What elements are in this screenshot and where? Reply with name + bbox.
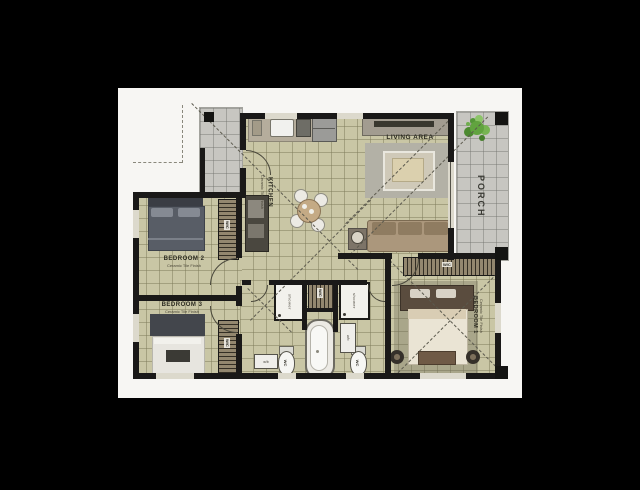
open-area-dashed-line-vertical: [182, 105, 183, 163]
sliding-door-porch: [448, 162, 454, 228]
bedroom3-wardrobe-label: W/C: [224, 338, 230, 348]
shower-drain: [278, 314, 281, 317]
porch-label: PORCH: [475, 172, 485, 220]
bedroom3-sublabel: Ceramic Tile Finish: [154, 310, 210, 314]
bedroom2-sublabel: Ceramic Tile Finish: [156, 264, 212, 268]
bedroom2-wardrobe-label: W/C: [224, 220, 230, 230]
wall-kitchen-left-upper: [240, 113, 246, 150]
window-bedroom2: [133, 210, 139, 238]
toilet-label: WC: [355, 360, 360, 367]
bedroom2-headboard: [148, 198, 203, 206]
wall-bath-top-a: [242, 280, 251, 285]
bedroom3-headboard: [150, 314, 205, 336]
bedroom1-bench: [418, 351, 456, 365]
wall-bedroom1-right-upper: [495, 253, 501, 303]
window-bedroom1-right: [495, 303, 501, 333]
window-bedroom3: [133, 314, 139, 342]
wall-corridor-mid: [236, 286, 242, 306]
wall-bedroom23-divider: [133, 295, 242, 301]
bathtub-basin: [310, 325, 328, 371]
sliding-door-track: [450, 162, 451, 228]
window-bath-right: [346, 373, 364, 379]
porch-column-bottom: [495, 247, 508, 260]
shower-label: shower: [288, 294, 293, 310]
living-area-label: LIVING AREA: [368, 134, 452, 141]
bedroom1-label: BEDROOM 1: [472, 284, 478, 346]
porch-column-top: [495, 112, 508, 125]
window-bedroom3-bottom: [156, 373, 194, 379]
bedroom3-label: BEDROOM 3: [154, 302, 210, 309]
kitchen-label: KITCHEN: [266, 156, 273, 228]
wall-bedroom2-right: [236, 198, 242, 258]
kitchen-cooktop: [248, 224, 264, 238]
bedroom1-pillow: [436, 289, 456, 298]
kitchen-sublabel: Ceramic Tile Finish: [260, 162, 264, 222]
refrigerator: [312, 117, 337, 142]
kitchen-stove: [296, 119, 311, 137]
bath-divider-wall-right: [333, 280, 338, 332]
bedroom2-blanket-fold: [148, 238, 203, 240]
bedroom3-bench: [166, 350, 190, 362]
bedroom2-label: BEDROOM 2: [156, 256, 212, 263]
window-living-top: [337, 113, 363, 119]
closet-bottom-wall: [307, 308, 338, 312]
refrigerator-divider: [312, 128, 335, 129]
entry-column: [204, 112, 214, 122]
house-corner-column: [495, 366, 508, 379]
dining-plate: [309, 209, 314, 214]
washbasin-left: w/b: [254, 354, 278, 369]
dining-plate: [302, 204, 307, 209]
sofa-cushion: [424, 222, 448, 235]
toilet-label: WC: [283, 360, 288, 367]
bedroom3-sheet: [154, 338, 201, 344]
washbasin-right: w/b: [340, 323, 356, 353]
bedroom1-bedside-lamp: [466, 350, 480, 364]
shower-drain: [343, 313, 346, 316]
window-kitchen: [265, 113, 297, 119]
bathtub-drain: [316, 350, 319, 353]
bedroom1-bedside-lamp: [390, 350, 404, 364]
wall-bedroom1-top-b: [418, 253, 501, 259]
toilet-left: WC: [278, 346, 293, 375]
kitchen-drainer: [252, 120, 262, 136]
wall-bedroom2-top: [133, 192, 242, 198]
hall-closet-label: W/C: [317, 288, 323, 298]
wall-bedroom1-top-a: [338, 253, 392, 259]
kitchen-sink: [270, 119, 294, 137]
bedroom1-wardrobe-label: W/C: [442, 262, 452, 267]
plan-canvas: W/C W/C W/C W/C shower shower: [118, 88, 522, 398]
bedroom2-pillow: [178, 208, 200, 217]
window-bedroom1-bottom: [420, 373, 466, 379]
bedroom1-sublabel: Ceramic Tile Finish: [479, 290, 483, 342]
shower-label: shower: [352, 293, 357, 309]
wall-entry-left: [200, 148, 205, 195]
sofa-cushion: [398, 222, 422, 235]
shower-stall-right: shower: [339, 282, 370, 320]
bedroom2-pillow: [151, 208, 173, 217]
floor-plan-image: W/C W/C W/C W/C shower shower: [0, 0, 640, 490]
wall-bedroom1-left: [385, 259, 391, 379]
tv: [374, 121, 434, 127]
wall-bath-top-b: [269, 280, 367, 285]
window-bath-left: [278, 373, 296, 379]
bath-divider-wall-left: [302, 280, 307, 330]
open-area-dashed-line-horizontal: [133, 162, 182, 163]
